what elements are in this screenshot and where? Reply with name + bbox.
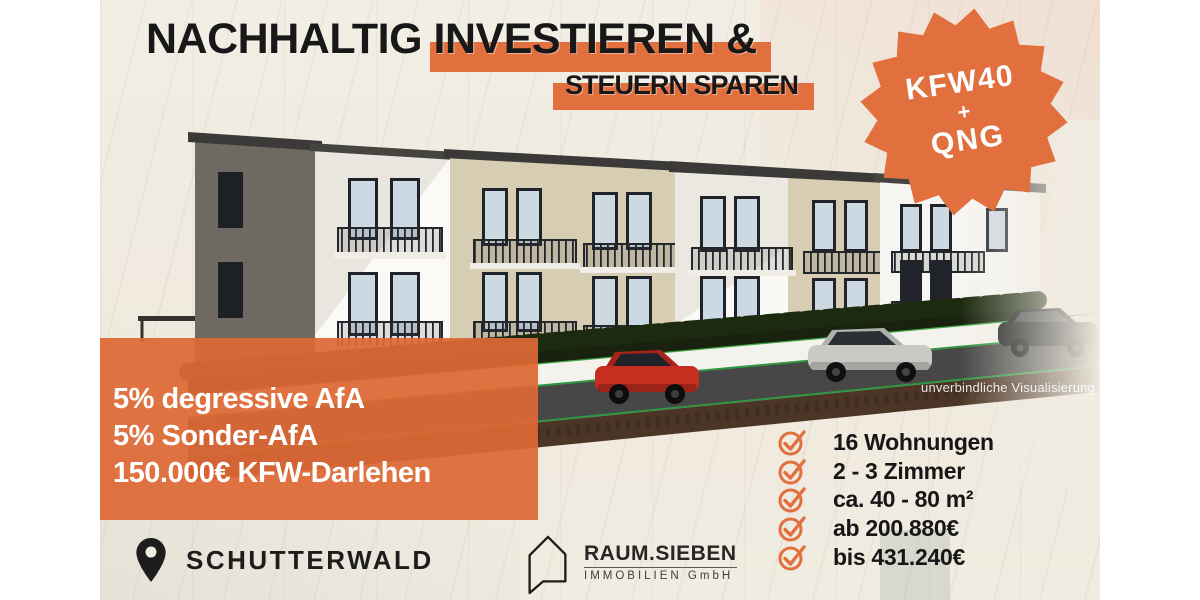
logo-divider (584, 567, 737, 568)
kfw-qng-badge: KFW40 + QNG (858, 6, 1070, 218)
location: SCHUTTERWALD (136, 538, 434, 582)
subheadline: STEUERN SPAREN (565, 70, 798, 100)
list-item: ab 200.880€ (778, 514, 994, 543)
badge-text: KFW40 + QNG (844, 0, 1083, 232)
headline-part1: NACHHALTIG (146, 15, 434, 63)
headline: NACHHALTIG INVESTIEREN & (146, 16, 757, 63)
subheadline-text: STEUERN SPAREN (565, 70, 798, 100)
logo-name: RAUM.SIEBEN (584, 543, 737, 565)
house-logo-icon (518, 530, 576, 596)
check-icon (778, 515, 808, 542)
check-icon (778, 486, 808, 513)
check-icon (778, 429, 808, 456)
location-pin-icon (136, 538, 166, 582)
flyer: NACHHALTIG INVESTIEREN & STEUERN SPAREN … (0, 0, 1200, 600)
feature-label: ca. 40 - 80 m² (833, 486, 973, 513)
check-icon (778, 458, 808, 485)
feature-list: 16 Wohnungen 2 - 3 Zimmer ca. 40 - 80 m² (778, 428, 994, 572)
badge-line2: + (956, 99, 972, 125)
feature-label: ab 200.880€ (833, 515, 959, 542)
logo-text: RAUM.SIEBEN IMMOBILIEN GmbH (584, 543, 737, 583)
list-item: 16 Wohnungen (778, 428, 994, 457)
feature-label: bis 431.240€ (833, 544, 965, 571)
location-name: SCHUTTERWALD (186, 545, 434, 576)
logo-subtitle: IMMOBILIEN GmbH (584, 570, 737, 583)
headline-highlight: INVESTIEREN & (434, 16, 757, 63)
feature-label: 16 Wohnungen (833, 429, 994, 456)
balcony-railing (338, 228, 442, 253)
offer-box: 5% degressive AfA 5% Sonder-AfA 150.000€… (100, 338, 538, 520)
offer-line-2: 5% Sonder-AfA (113, 418, 538, 455)
offer-line-1: 5% degressive AfA (113, 381, 538, 418)
visualization-disclaimer: unverbindliche Visualisierung (921, 380, 1095, 395)
check-icon (778, 544, 808, 571)
feature-label: 2 - 3 Zimmer (833, 458, 965, 485)
offer-line-3: 150.000€ KFW-Darlehen (113, 455, 538, 492)
headline-line1: NACHHALTIG INVESTIEREN & (146, 16, 757, 63)
list-item: 2 - 3 Zimmer (778, 457, 994, 486)
badge-line3: QNG (929, 120, 1007, 162)
flyer-content-area: NACHHALTIG INVESTIEREN & STEUERN SPAREN … (100, 0, 1100, 600)
company-logo: RAUM.SIEBEN IMMOBILIEN GmbH (518, 530, 737, 596)
list-item: ca. 40 - 80 m² (778, 486, 994, 515)
headline-part2: INVESTIEREN & (434, 15, 757, 63)
subheadline-highlight: STEUERN SPAREN (565, 70, 798, 100)
list-item: bis 431.240€ (778, 543, 994, 572)
